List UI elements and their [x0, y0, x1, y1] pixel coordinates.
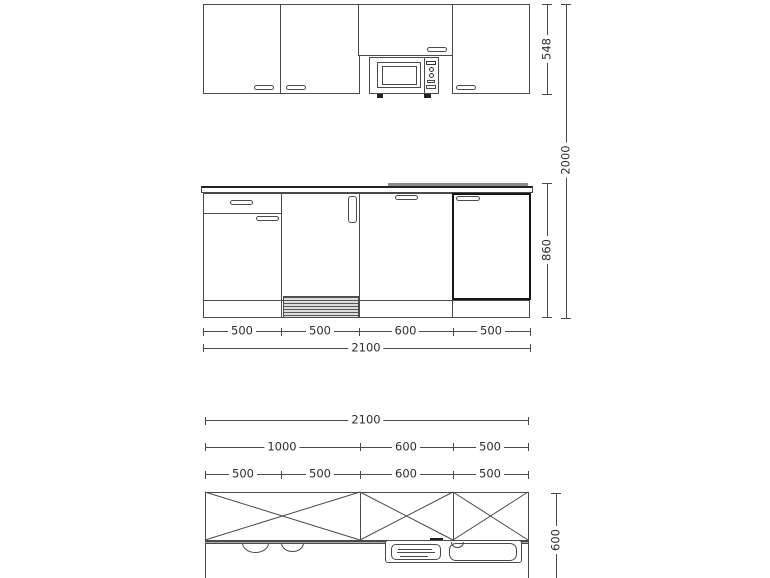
drainer-groove: [398, 549, 432, 550]
dim-tick: [528, 471, 529, 479]
microwave-foot: [424, 94, 431, 98]
dim-label-plan-segment: 500: [476, 468, 504, 481]
appliance-door: [452, 193, 531, 301]
drainer-groove: [400, 556, 428, 557]
dim-tick: [453, 328, 454, 336]
microwave-display: [426, 61, 436, 65]
door-handle: [395, 195, 418, 200]
dim-label-upper-height: 548: [541, 35, 554, 63]
door-handle: [256, 216, 279, 221]
door-handle: [254, 85, 274, 90]
vertical-door-handle: [348, 196, 357, 223]
dim-tick: [528, 417, 529, 425]
drawer-handle: [230, 200, 253, 205]
dim-label-total-height: 2000: [560, 142, 573, 177]
dim-tick: [205, 471, 206, 479]
dim-tick: [530, 328, 531, 336]
dim-label-total-width: 2100: [348, 341, 383, 354]
dim-label-segment: 600: [392, 325, 420, 338]
dim-label-base-height: 860: [541, 236, 554, 264]
dim-tick: [542, 317, 552, 318]
dim-label-group: 1000: [264, 440, 299, 453]
dim-label-segment: 500: [228, 325, 256, 338]
microwave-niche-right-panel: [452, 56, 453, 94]
kitchen-technical-drawing: 548 2000 860 500 500 600 500 2100 2100: [0, 0, 770, 578]
wall-cabinet-door-2: [280, 4, 360, 94]
microwave-knob: [429, 73, 434, 78]
dim-tick: [561, 318, 571, 319]
dim-label-group: 500: [476, 440, 504, 453]
door-handle: [427, 47, 447, 52]
dim-tick: [360, 443, 361, 451]
drainer-groove: [397, 552, 435, 553]
dim-label-plan-segment: 600: [392, 468, 420, 481]
microwave-window: [382, 66, 417, 85]
cabinet-divider: [281, 193, 282, 319]
microwave-button: [427, 80, 435, 83]
microwave-open-button: [426, 85, 436, 90]
microwave-panel-divider: [424, 57, 425, 94]
dim-tick: [542, 94, 552, 95]
dim-tick: [360, 471, 361, 479]
dim-tick: [528, 443, 529, 451]
dim-label-plan-total: 2100: [348, 414, 383, 427]
dim-label-plan-segment: 500: [306, 468, 334, 481]
dim-label-group: 600: [392, 440, 420, 453]
microwave-foot: [377, 94, 384, 98]
dim-tick: [530, 344, 531, 352]
dim-tick: [205, 417, 206, 425]
dim-tick: [203, 344, 204, 352]
wall-cabinet-door-1: [203, 4, 281, 94]
dim-tick: [561, 4, 571, 5]
microwave-knob: [429, 67, 434, 72]
dim-tick: [542, 4, 552, 5]
door-handle: [286, 85, 306, 90]
handle-arc: [281, 543, 304, 552]
dim-tick: [205, 443, 206, 451]
drawer-divider: [203, 213, 281, 214]
handle-arc: [242, 543, 269, 553]
dim-label-segment: 500: [306, 325, 334, 338]
dim-label-depth: 600: [549, 526, 562, 554]
dim-tick: [281, 471, 282, 479]
wall-cabinet-cross-marks: [205, 492, 528, 541]
plinth-vent-grille: [283, 296, 360, 318]
dim-tick: [281, 328, 282, 336]
door-handle: [456, 196, 480, 201]
dim-tick: [203, 328, 204, 336]
dim-tick: [453, 471, 454, 479]
wall-cabinet-door-3: [452, 4, 530, 94]
dim-tick: [542, 183, 552, 184]
dim-tick: [453, 443, 454, 451]
microwave-niche-left-panel: [359, 56, 360, 94]
dim-label-segment: 500: [477, 325, 505, 338]
dim-label-plan-segment: 500: [229, 468, 257, 481]
dim-tick: [551, 493, 561, 494]
dim-tick: [359, 328, 360, 336]
door-handle: [456, 85, 476, 90]
